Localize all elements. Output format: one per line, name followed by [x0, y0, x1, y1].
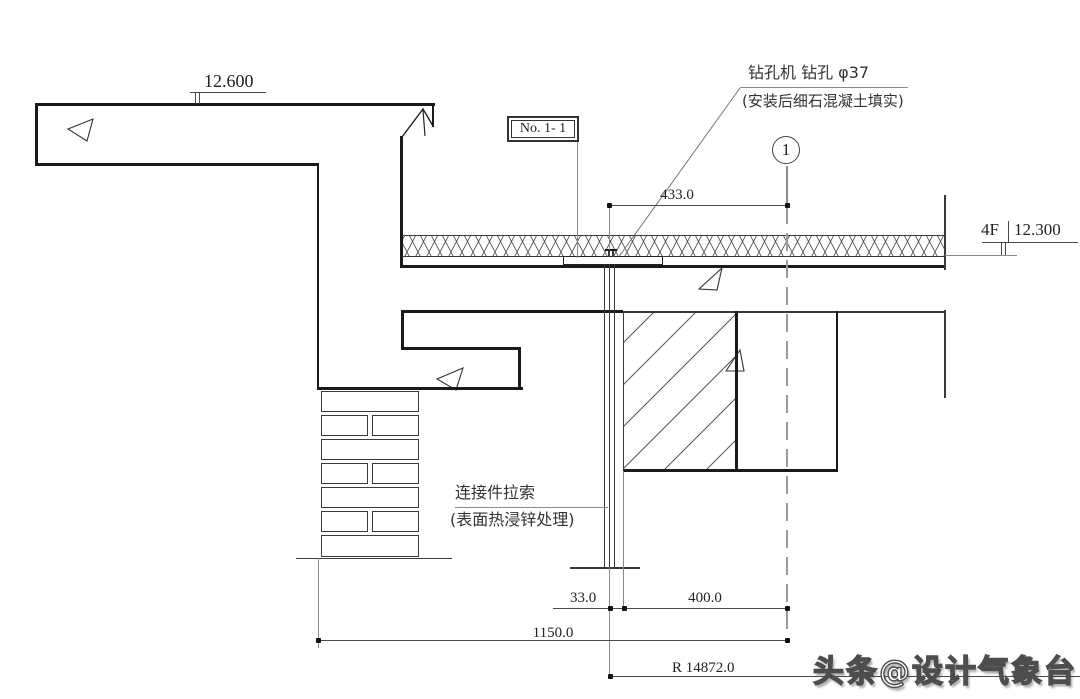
watermark: 头条@设计气象台 [813, 646, 1077, 691]
cable-extension-down [609, 567, 610, 677]
dim1150-value: 1150.0 [522, 625, 584, 642]
block-right-line [735, 311, 738, 471]
axis-bubble: 1 [772, 136, 800, 164]
dim433-value: 433.0 [647, 187, 707, 204]
dim400-value: 400.0 [675, 590, 735, 607]
drill-note-line2: (安装后细石混凝土填实) [742, 93, 904, 110]
level-4f-value: 12.300 [1014, 221, 1061, 240]
dim-dot [607, 203, 612, 208]
slope-arrow-icon [68, 119, 93, 141]
elev-4f-leader [945, 255, 1017, 256]
slab-cut-edge-upper [944, 195, 946, 270]
break-mark-edge [423, 110, 425, 136]
level-4f-floor: 4F [981, 221, 999, 240]
hatched-block [623, 311, 736, 470]
cable-line [609, 264, 610, 568]
block-extension-down [623, 471, 624, 609]
elev-4f-tick [1005, 242, 1006, 255]
slope-arrow-icon [699, 268, 722, 290]
cable-note-line2: (表面热浸锌处理) [450, 511, 575, 529]
recess-top-line-thin [623, 311, 945, 313]
cable-anchor-bar [570, 567, 640, 569]
dim-radius-value: R 14872.0 [672, 660, 735, 677]
mass-right-vertical [518, 347, 521, 390]
detail-tag-label: No. 1- 1 [511, 120, 575, 138]
drill-note-underline [740, 87, 908, 88]
drill-note-line1: 钻孔机 钻孔 φ37 [748, 64, 869, 82]
dim-dot [785, 606, 790, 611]
dim33-value: 33.0 [570, 590, 596, 607]
slab-crosshatch-band [402, 236, 945, 257]
parapet-right-edge [432, 103, 434, 127]
beam-bottom-line [623, 469, 838, 472]
anchor-bolt-stem [608, 251, 610, 257]
cad-detail-drawing: 12.600 钻孔机 钻孔 φ37 (安装后细石混凝土填实) No. 1- 1 … [0, 0, 1080, 699]
dim-dot [608, 606, 613, 611]
beam-right-line [836, 311, 838, 471]
elev-top-tick [195, 92, 196, 104]
cable-line [604, 264, 605, 568]
dim-dot [785, 638, 790, 643]
slab-cut-edge-lower [944, 310, 946, 398]
cable-note-leader [455, 507, 608, 508]
break-mark-icon [402, 109, 433, 137]
hatch-band-top-border [402, 235, 945, 236]
dim-dot [622, 606, 627, 611]
detail-tag-box: No. 1- 1 [507, 116, 579, 142]
recess-top-line-heavy [401, 310, 623, 313]
ground-line [296, 558, 452, 559]
dim-dot [785, 203, 790, 208]
slab-soffit-line [400, 265, 945, 268]
connector-plate [563, 256, 663, 265]
axis-line-dashed [786, 206, 788, 641]
wall-right-line [400, 136, 403, 267]
parapet-bottom-line [35, 163, 319, 166]
detail-tag-leader [577, 140, 578, 258]
elev-top-underline [190, 92, 266, 93]
recess-step-vertical [401, 310, 404, 350]
cable-line [614, 264, 615, 568]
dim433-extension-left [609, 205, 610, 250]
dim33-400-line [553, 608, 788, 609]
anchor-bolt-stem [612, 251, 614, 257]
parapet-left-line [35, 103, 38, 165]
axis-bubble-number: 1 [782, 140, 791, 160]
hatch-band-bottom-border [402, 256, 945, 257]
elev-top-tick [199, 92, 200, 104]
wall-left-line [317, 163, 319, 390]
parapet-top-line [35, 103, 435, 106]
block-left-line [623, 311, 624, 470]
cable-note-line1: 连接件拉索 [455, 484, 535, 502]
wall-extension-down [318, 558, 319, 648]
dim-dot [608, 674, 613, 679]
elev-4f-underline [982, 242, 1078, 243]
mass-bottom-line [317, 387, 523, 390]
anchor-bolt-head [605, 249, 617, 251]
axis-line-solid [786, 166, 788, 206]
elev-4f-tick [1001, 242, 1002, 255]
dim433-line [609, 205, 789, 206]
recess-step-bottom [401, 347, 520, 350]
elev-4f-separator [1008, 221, 1009, 243]
dim-dot [316, 638, 321, 643]
elevation-top-value: 12.600 [204, 72, 254, 92]
